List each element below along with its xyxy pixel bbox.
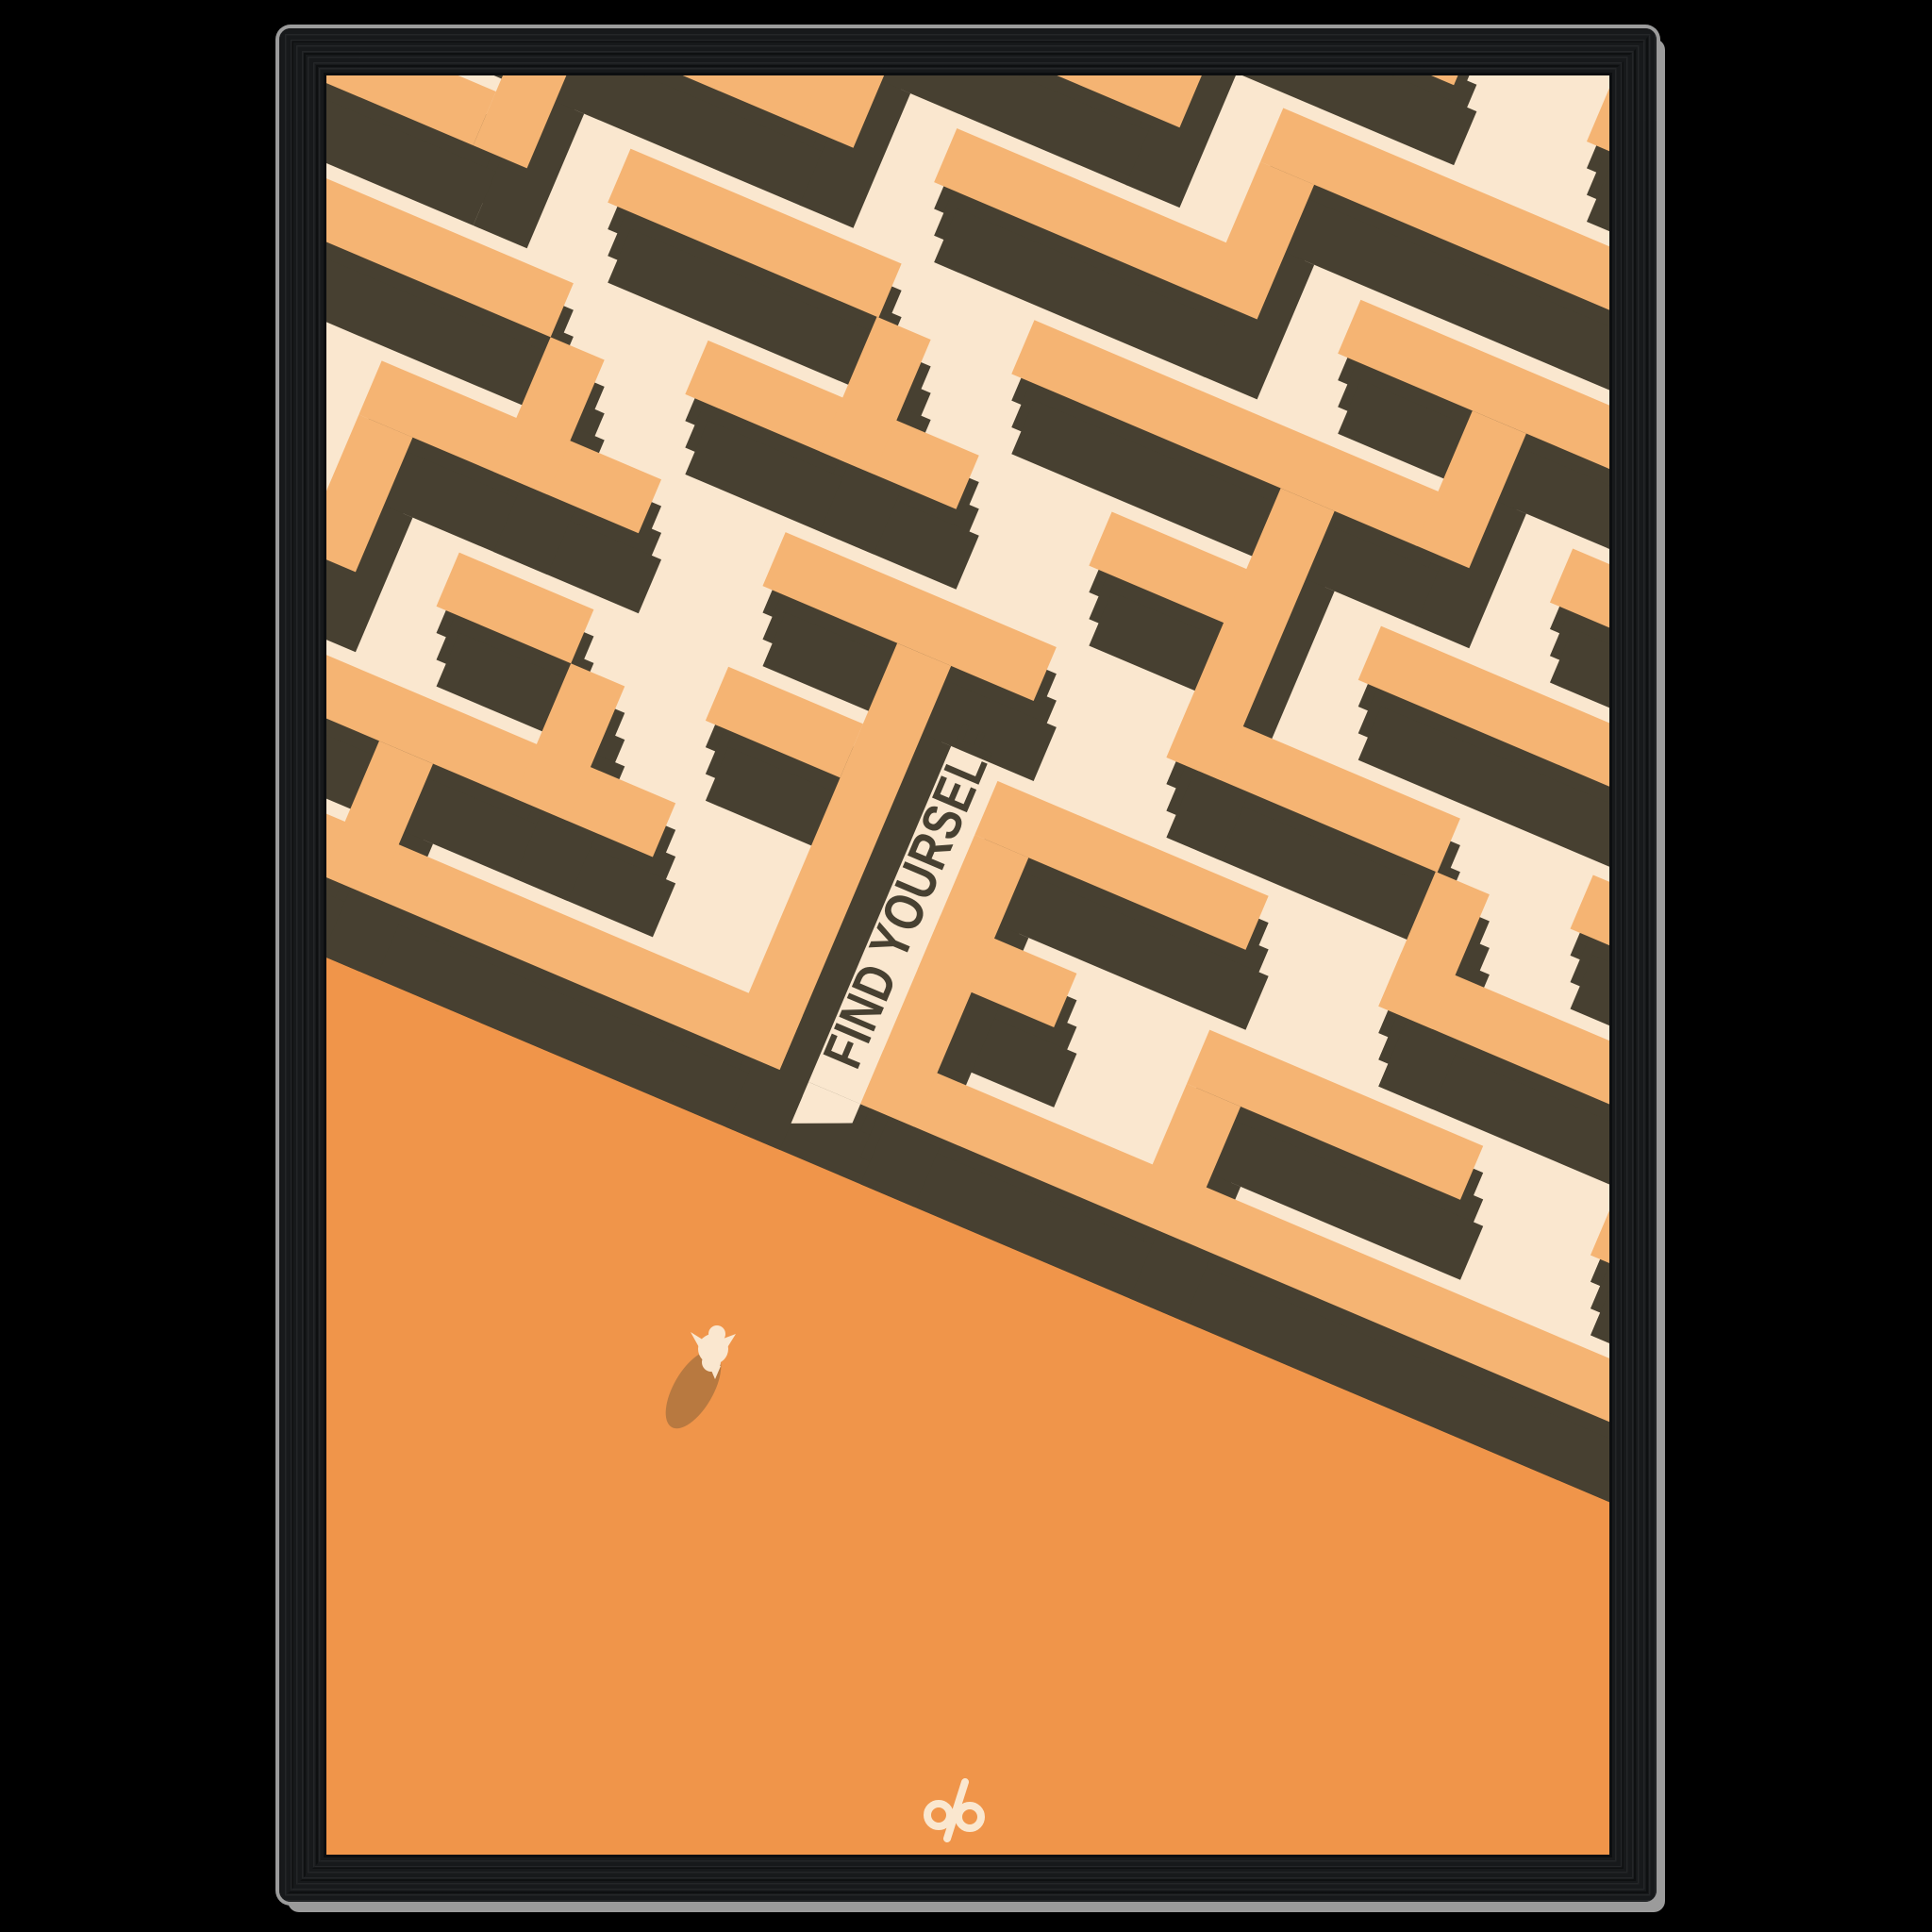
picture-frame: FIND YOURSELF	[279, 28, 1657, 1902]
frame-edge-left	[279, 28, 326, 1902]
maze-poster: FIND YOURSELF	[326, 75, 1609, 1855]
frame-edge-right	[1609, 28, 1657, 1902]
photo-stage: FIND YOURSELF	[0, 0, 1932, 1932]
frame-edge-top	[279, 28, 1657, 75]
frame-edge-bottom	[279, 1855, 1657, 1902]
maze-poster-art: FIND YOURSELF	[326, 75, 1609, 1855]
